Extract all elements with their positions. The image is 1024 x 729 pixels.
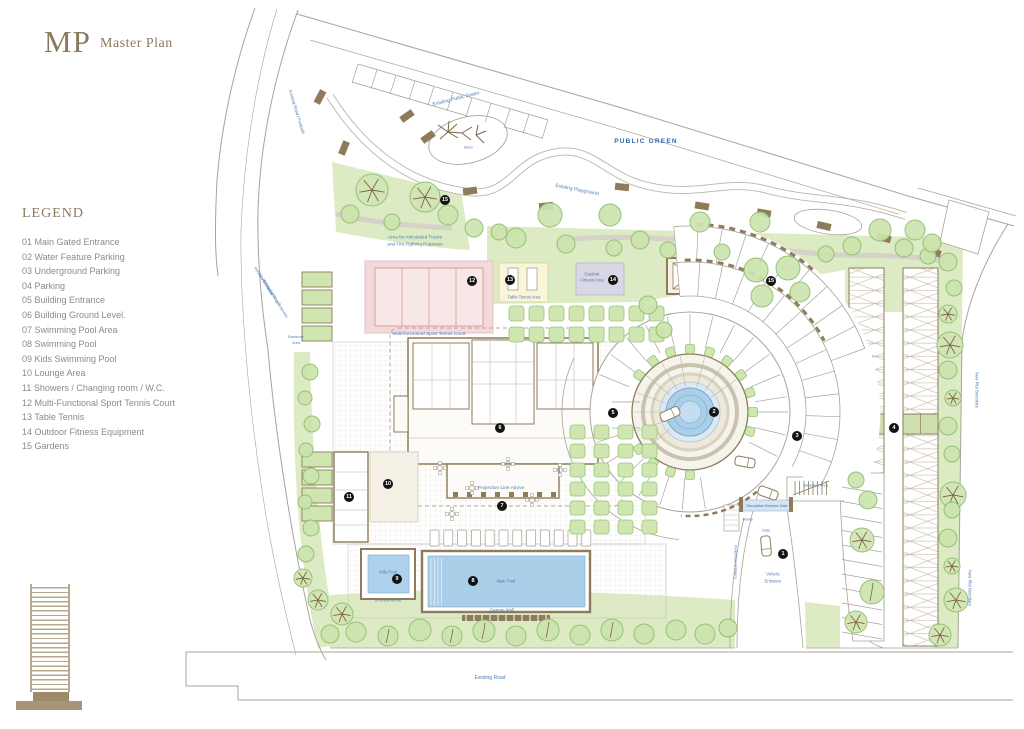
master-plan-page: { "header": { "logo": "MP", "title": "Ma… [0, 0, 1024, 729]
site-plan-drawing [0, 0, 1024, 729]
